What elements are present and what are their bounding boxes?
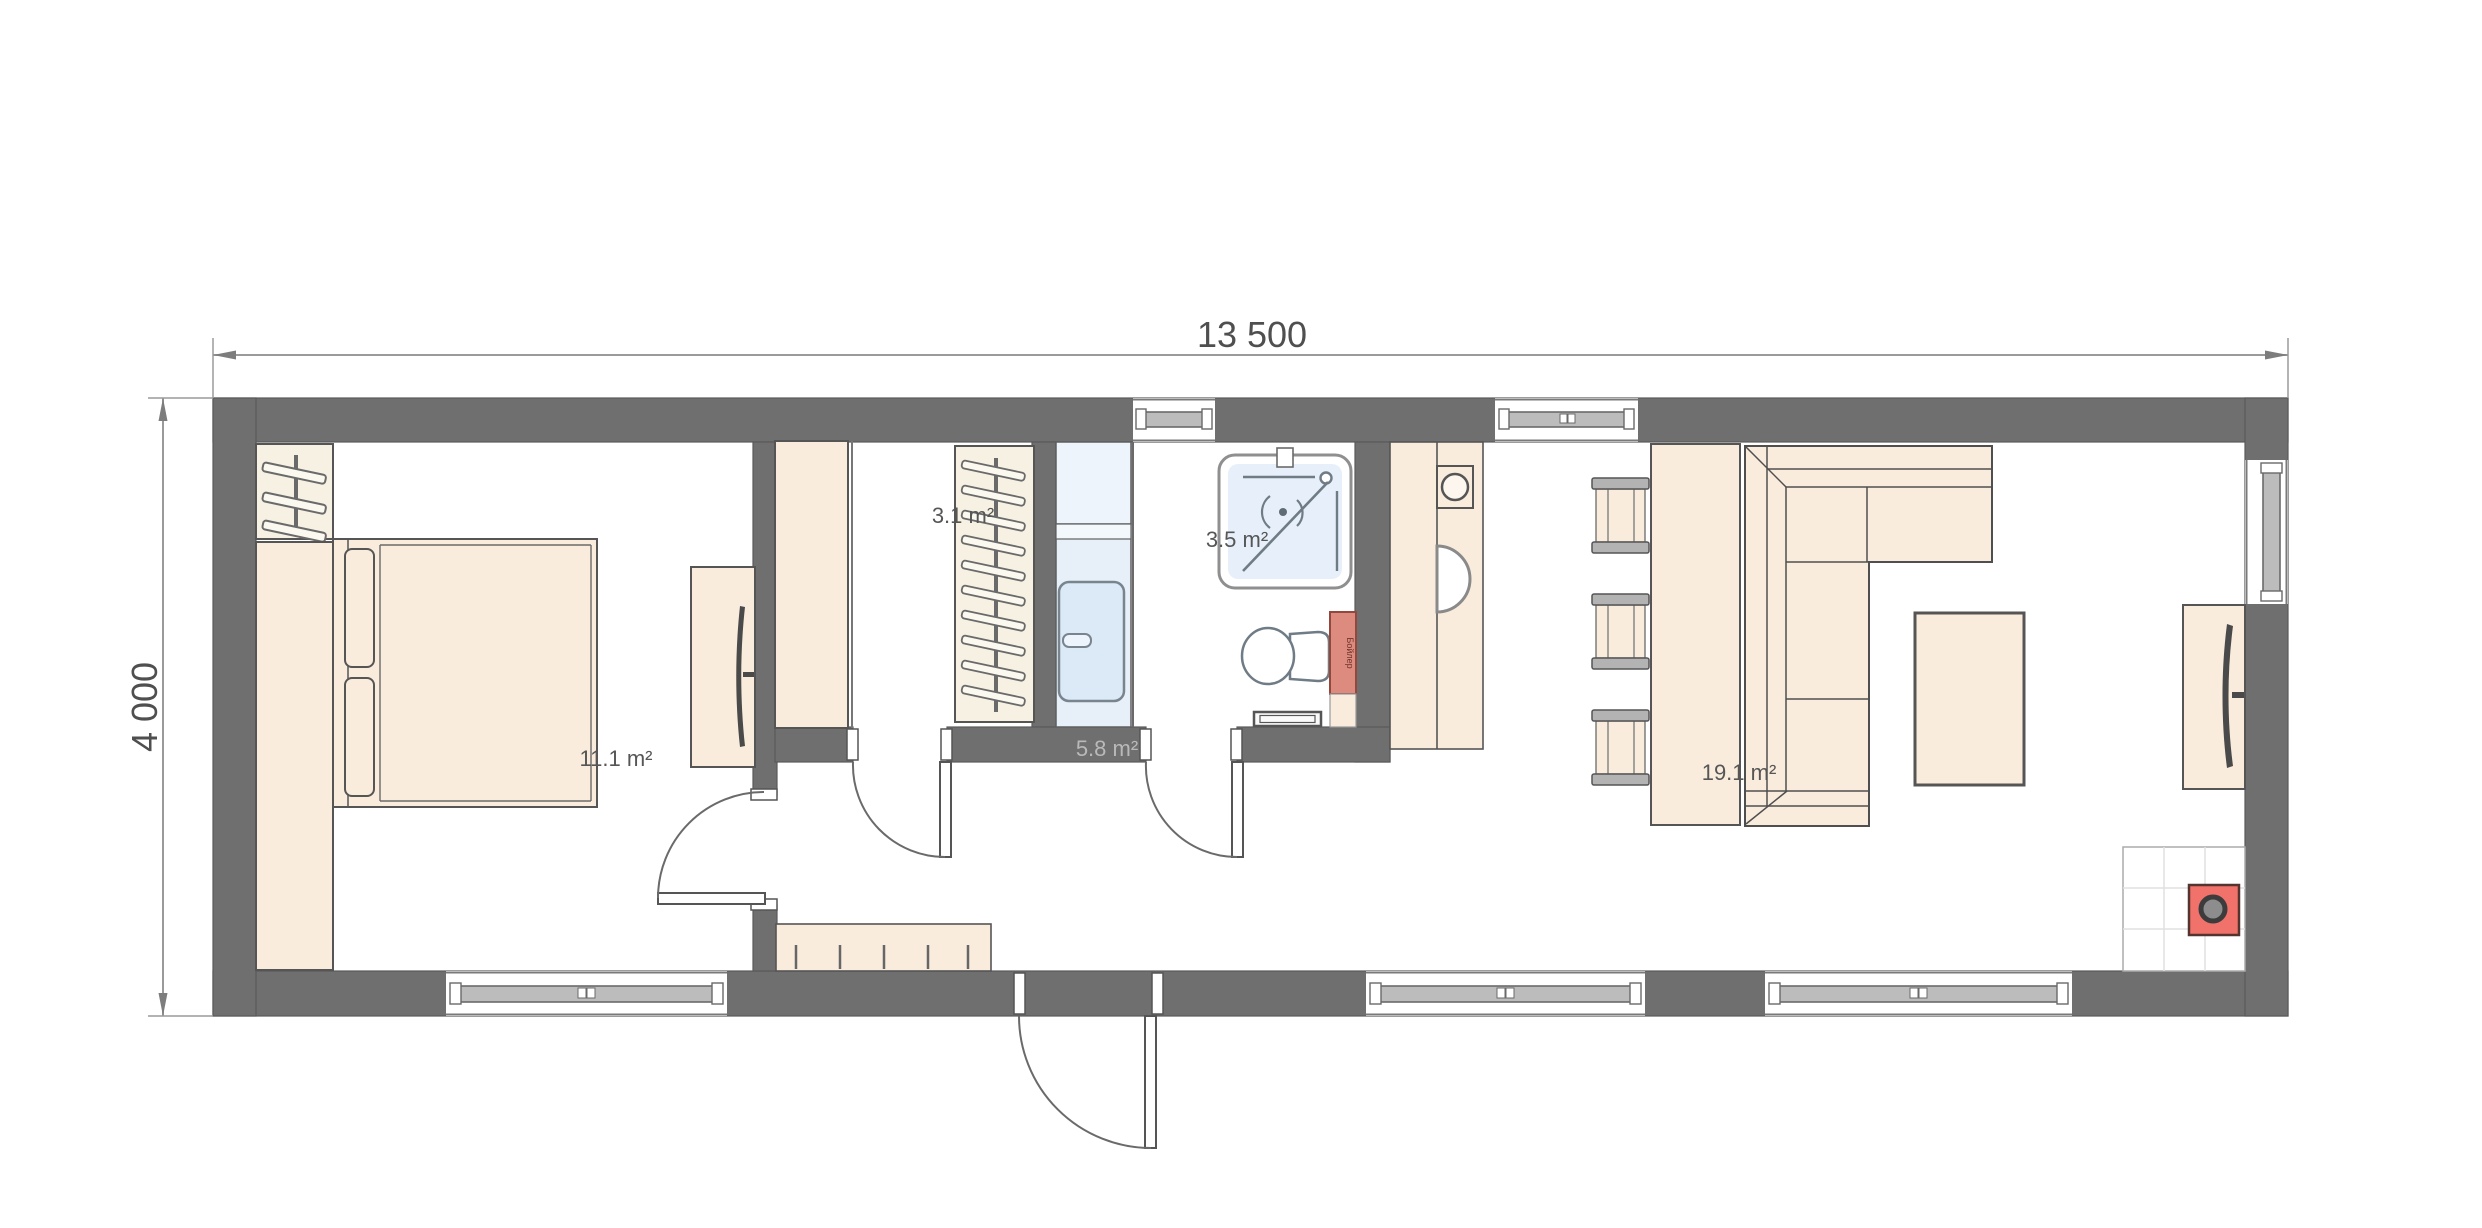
svg-text:5.8 m²: 5.8 m² [1076, 736, 1138, 761]
svg-text:19.1 m²: 19.1 m² [1702, 760, 1777, 785]
svg-text:3.5 m²: 3.5 m² [1206, 527, 1268, 552]
svg-text:13 500: 13 500 [1197, 314, 1307, 355]
svg-text:Бойлер: Бойлер [1345, 637, 1355, 668]
svg-text:3.1 m²: 3.1 m² [932, 503, 994, 528]
svg-text:11.1 m²: 11.1 m² [580, 746, 653, 771]
svg-text:4 000: 4 000 [124, 662, 165, 752]
